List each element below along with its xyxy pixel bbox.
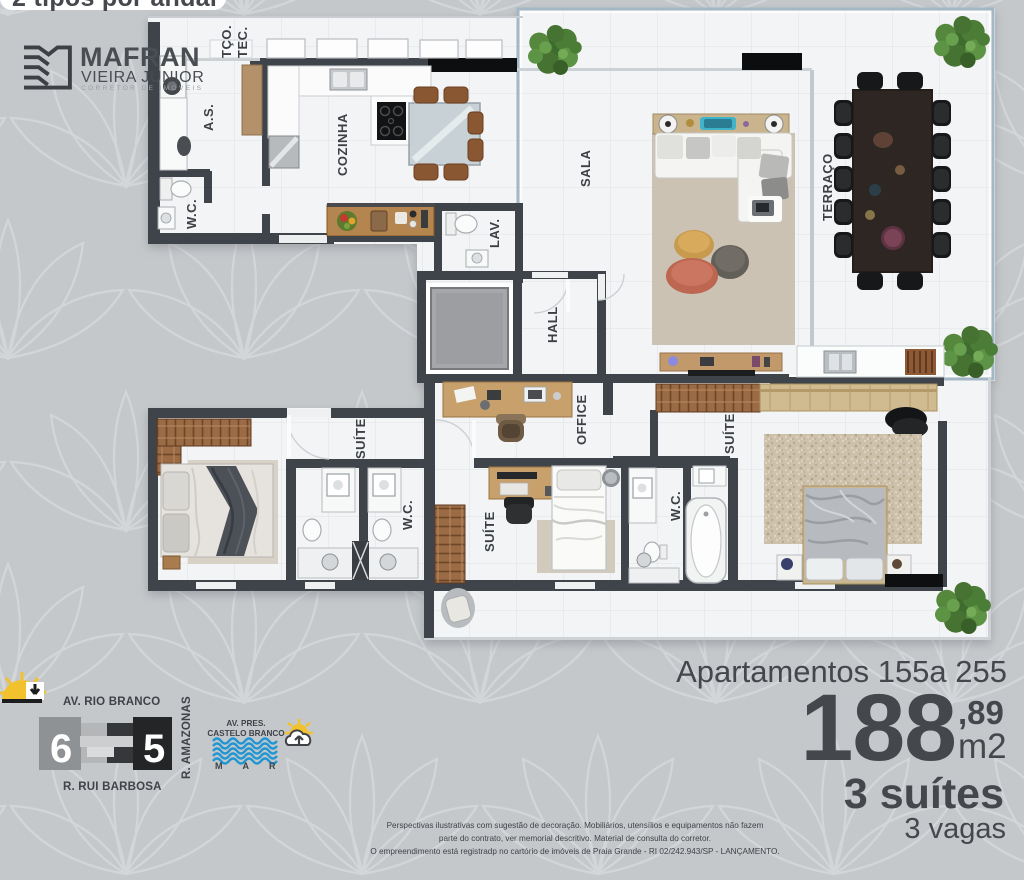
svg-text:SUÍTE: SUÍTE [353,418,368,459]
svg-text:MAFRAN: MAFRAN [80,42,200,72]
svg-text:R. AMAZONAS: R. AMAZONAS [181,696,193,779]
svg-text:m2: m2 [958,727,1007,766]
svg-text:SUÍTE: SUÍTE [722,413,737,454]
svg-text:2 tipos por andar: 2 tipos por andar [12,0,220,12]
svg-text:OFFICE: OFFICE [574,394,589,445]
svg-text:TEC.: TEC. [235,26,250,58]
svg-text:,89: ,89 [958,694,1004,731]
svg-text:HALL: HALL [545,306,560,343]
svg-text:A.S.: A.S. [201,104,216,131]
svg-text:3 vagas: 3 vagas [904,813,1006,845]
svg-text:MAR: MAR [215,761,296,771]
svg-text:LAV.: LAV. [487,219,502,248]
svg-text:COZINHA: COZINHA [335,113,350,176]
svg-text:188: 188 [800,675,956,781]
svg-text:VIEIRA JUNIOR: VIEIRA JUNIOR [81,69,204,86]
svg-text:W.C.: W.C. [668,491,683,521]
svg-text:5: 5 [143,727,165,771]
svg-text:3 suítes: 3 suítes [844,770,1004,818]
svg-text:O empreendimento está registra: O empreendimento está registradp no cart… [370,847,779,856]
svg-text:R. RUI BARBOSA: R. RUI BARBOSA [63,781,162,793]
svg-text:SUÍTE: SUÍTE [482,511,497,552]
svg-text:CASTELO BRANCO: CASTELO BRANCO [207,729,285,738]
svg-text:TERRAÇO: TERRAÇO [820,153,835,221]
svg-text:6: 6 [50,727,72,771]
svg-text:Perspectivas ilustrativas com: Perspectivas ilustrativas com sugestão d… [387,821,764,830]
svg-text:TÇO.: TÇO. [219,25,234,58]
svg-text:AV. PRES.: AV. PRES. [226,719,265,728]
svg-text:SALA: SALA [578,150,593,188]
svg-text:parte do contrato, ver memoria: parte do contrato, ver memorial descriti… [439,834,711,843]
svg-text:CORRETOR DE IMÓVEIS: CORRETOR DE IMÓVEIS [81,83,203,92]
svg-text:W.C.: W.C. [184,199,199,229]
svg-text:AV. RIO BRANCO: AV. RIO BRANCO [63,696,160,708]
svg-text:W.C.: W.C. [400,500,415,530]
